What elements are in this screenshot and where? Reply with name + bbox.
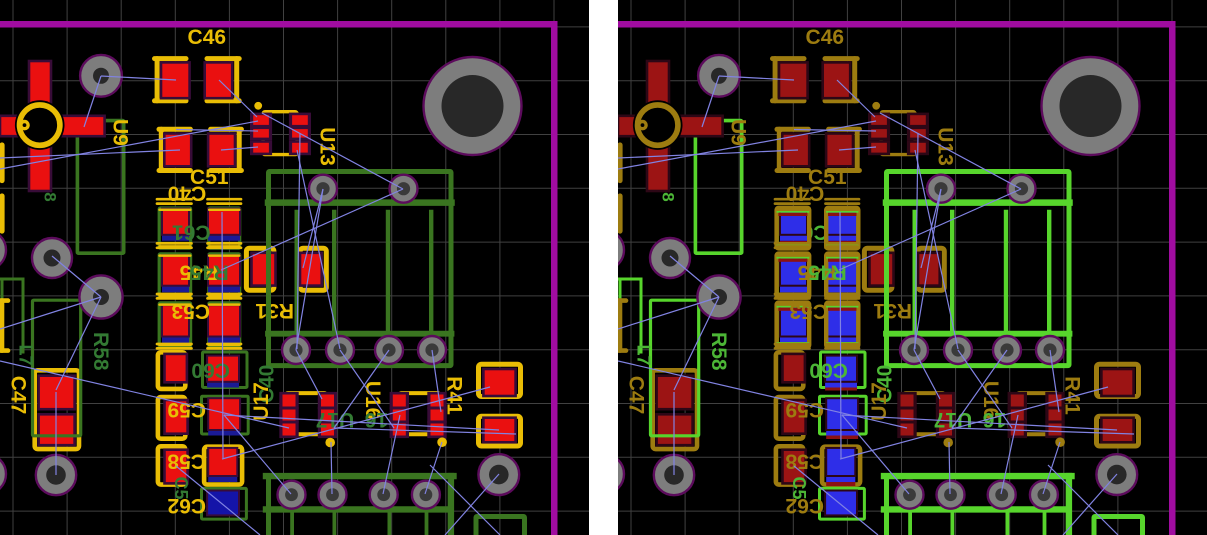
svg-text:8: 8: [659, 192, 678, 201]
svg-text:C40: C40: [168, 182, 207, 205]
svg-text:R31: R31: [873, 299, 912, 322]
svg-text:U9: U9: [727, 119, 750, 146]
svg-text:R41: R41: [443, 376, 466, 415]
svg-text:R58: R58: [89, 332, 112, 371]
svg-text:R45: R45: [808, 260, 847, 283]
svg-text:R58: R58: [707, 332, 730, 371]
svg-text:R45: R45: [190, 260, 229, 283]
svg-text:U9: U9: [109, 119, 132, 146]
svg-text:R31: R31: [255, 299, 294, 322]
svg-text:C62: C62: [785, 494, 824, 517]
svg-text:C53: C53: [171, 300, 210, 323]
svg-text:C46: C46: [188, 26, 227, 49]
svg-text:C47: C47: [625, 376, 648, 415]
svg-text:U13: U13: [933, 127, 956, 166]
svg-text:U13: U13: [315, 127, 338, 166]
svg-text:C40: C40: [786, 182, 825, 205]
svg-text:C61: C61: [172, 221, 211, 244]
svg-text:U17: U17: [250, 382, 273, 421]
svg-text:8: 8: [41, 192, 60, 201]
svg-text:C47: C47: [7, 376, 30, 415]
svg-text:C53: C53: [789, 300, 828, 323]
svg-text:C60: C60: [191, 358, 230, 381]
svg-text:R41: R41: [1061, 376, 1084, 415]
svg-text:C58: C58: [785, 450, 824, 473]
svg-text:L7: L7: [634, 344, 654, 365]
svg-text:C62: C62: [167, 494, 206, 517]
svg-text:C60: C60: [809, 358, 848, 381]
svg-text:C46: C46: [806, 26, 845, 49]
svg-text:C58: C58: [167, 450, 206, 473]
svg-text:L7: L7: [16, 344, 36, 365]
svg-text:U17: U17: [868, 382, 891, 421]
